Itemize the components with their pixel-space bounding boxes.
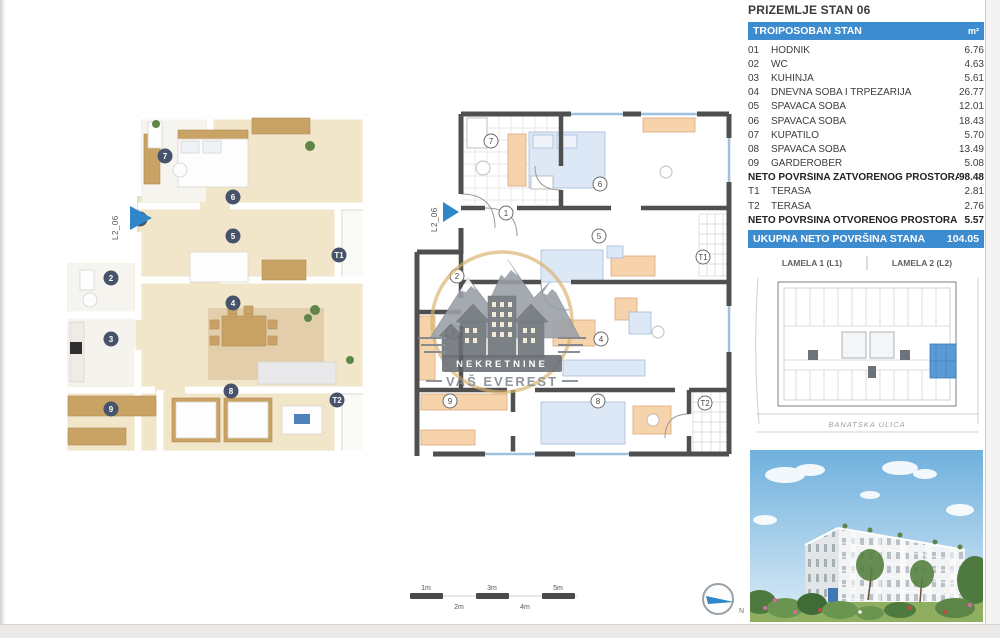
svg-text:T2: T2 [332,396,342,405]
page-title: PRIZEMLJE STAN 06 [748,3,984,17]
svg-text:9: 9 [109,405,114,414]
svg-text:3: 3 [109,335,114,344]
table-row: T2TERASA2.76 [748,199,984,213]
page-left-edge [0,0,6,638]
table-row: 06SPAVAĆA SOBA18.43 [748,114,984,128]
floor-plan-sheet: 7 6 1 5 2 3 4 9 8 T1 T2 L2_06 [0,0,1000,638]
svg-text:2m: 2m [454,604,464,611]
svg-text:T1: T1 [334,251,344,260]
apartment-type-label: TROIPOSOBAN STAN [753,25,862,37]
svg-text:8: 8 [229,387,234,396]
subtotal-open-row: NETO POVRŠINA OTVORENOG PROSTORA5.57 [748,213,984,227]
table-row: 02WC4.63 [748,57,984,71]
table-row: 09GARDEROBER5.08 [748,157,984,171]
svg-text:7: 7 [489,137,494,146]
svg-text:4m: 4m [520,604,530,611]
subtotal-closed-row: NETO POVRŠINA ZATVORENOG PROSTORA98.48 [748,171,984,185]
plan2d-terrace-tiles [693,214,729,452]
site-plan-building [778,282,956,406]
svg-text:L2_06: L2_06 [111,215,120,240]
unit-label: m² [968,26,979,36]
svg-text:5: 5 [231,232,236,241]
svg-text:7: 7 [163,152,168,161]
svg-text:4: 4 [599,335,604,344]
svg-text:5m: 5m [553,585,563,592]
area-info-panel: PRIZEMLJE STAN 06 TROIPOSOBAN STAN m² 01… [748,3,984,248]
svg-text:1m: 1m [421,585,431,592]
svg-text:T2: T2 [700,399,710,408]
site-plan: LAMELA 1 (L1) LAMELA 2 (L2) BANATSKA ULI… [750,256,984,448]
lamela1-label: LAMELA 1 (L1) [782,258,842,268]
plan2d-entry-marker: L2_06 [430,202,459,232]
svg-text:3m: 3m [487,585,497,592]
compass: N [698,580,748,622]
building-photo [750,450,983,622]
table-row: 07KUPATILO5.70 [748,128,984,142]
table-row: 04DNEVNA SOBA I TRPEZARIJA26.77 [748,86,984,100]
svg-text:4: 4 [231,299,236,308]
north-label: N [739,608,744,615]
logo-line2: VAŠ EVEREST [446,374,558,389]
page-right-edge [985,0,1000,638]
svg-text:6: 6 [231,193,236,202]
logo-line1: NEKRETNINE [456,359,548,370]
floor-plan-3d: 7 6 1 5 2 3 4 9 8 T1 T2 L2_06 [60,110,372,460]
svg-text:6: 6 [598,180,603,189]
total-area-bar: UKUPNA NETO POVRŠINA STANA 104.05 [748,230,984,248]
total-area-label: UKUPNA NETO POVRŠINA STANA [753,233,925,245]
table-row: 01HODNIK6.76 [748,43,984,57]
page-bottom-edge [0,624,1000,638]
table-row: 05SPAVAĆA SOBA12.01 [748,100,984,114]
total-area-value: 104.05 [947,233,979,245]
scale-bar: 1m 2m 3m 4m 5m [406,582,584,612]
apartment-type-header: TROIPOSOBAN STAN m² [748,22,984,40]
svg-text:L2_06: L2_06 [430,207,439,232]
lamela2-label: LAMELA 2 (L2) [892,258,952,268]
svg-text:5: 5 [597,232,602,241]
entry-arrow-icon [443,202,459,222]
svg-text:1: 1 [504,209,509,218]
table-row: 03KUHINJA5.61 [748,71,984,85]
svg-text:2: 2 [109,274,114,283]
street-label: BANATSKA ULICA [828,420,905,429]
agency-watermark-logo: NEKRETNINE VAŠ EVEREST [412,242,592,400]
scale-segments [410,593,575,599]
table-row: 08SPAVAĆA SOBA13.49 [748,142,984,156]
table-row: T1TERASA2.81 [748,185,984,199]
area-table: 01HODNIK6.76 02WC4.63 03KUHINJA5.61 04DN… [748,43,984,227]
svg-text:8: 8 [596,397,601,406]
svg-text:T1: T1 [698,253,708,262]
